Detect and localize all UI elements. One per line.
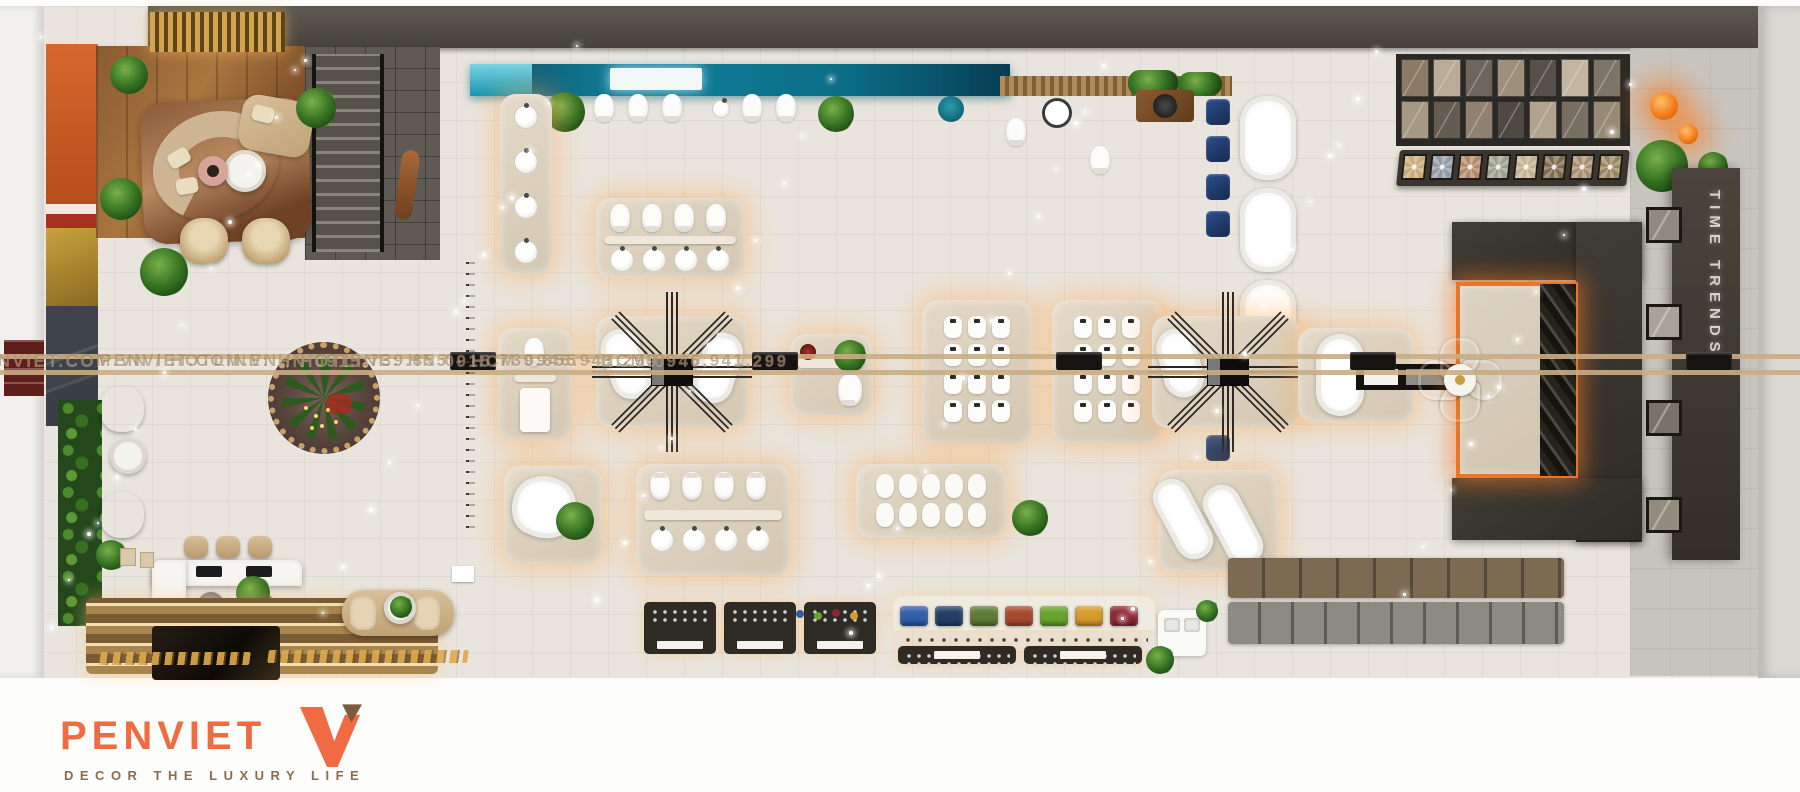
faucet-display-table (804, 602, 876, 654)
gold-wall-panel (46, 228, 98, 306)
toilet-fixture (650, 472, 670, 500)
freestanding-bathtub (1240, 96, 1296, 180)
rattan-chair (100, 492, 144, 538)
seat-sq-fixture (944, 400, 962, 422)
teal-lightbox-strip (470, 64, 532, 96)
pattern-tile (1457, 154, 1484, 180)
orange-pendant-lamp (1650, 92, 1678, 120)
consultation-table (1444, 364, 1476, 396)
navy-unit-fixture (1206, 99, 1230, 125)
marble-tile (1433, 59, 1461, 97)
potted-plant (1146, 646, 1174, 674)
basin-round-fixture (650, 528, 674, 552)
red-wall-stripe (46, 214, 98, 228)
pedestal-basin (1042, 98, 1072, 128)
potted-plant (1196, 600, 1218, 622)
wood-basin-table (1136, 90, 1194, 122)
pattern-tile (1597, 154, 1624, 180)
penviet-logo-text: PENVIET (60, 714, 266, 759)
white-wall-stripe (46, 204, 98, 214)
seat-sq-fixture (1074, 400, 1092, 422)
seat-sq-fixture (968, 372, 986, 394)
toilet-display (838, 374, 862, 406)
pattern-tile (1569, 154, 1596, 180)
toilet-grid (876, 474, 986, 527)
freestanding-bathtub (1240, 188, 1296, 272)
toilet-fixture (682, 472, 702, 500)
color-basin (1040, 606, 1068, 626)
string-lights (304, 406, 308, 410)
marble-tile (1497, 101, 1525, 139)
seat-sq-fixture (992, 316, 1010, 338)
potted-plant (296, 88, 336, 128)
toilet-fixture (610, 204, 630, 232)
toilet-fixture (642, 204, 662, 232)
seat-sq-fixture (1098, 316, 1116, 338)
floor-sign-card (452, 566, 474, 582)
navy-unit-fixture (1206, 211, 1230, 237)
color-basin (1110, 606, 1138, 626)
rail-slider-block (1350, 352, 1396, 370)
gold-3d-signage (99, 652, 251, 665)
reception-stool (248, 536, 272, 558)
toilet-display (1090, 146, 1110, 174)
toilet-fixture (776, 94, 796, 122)
potted-plant (390, 596, 412, 618)
oval-sq-fixture (876, 474, 894, 498)
color-basin (1005, 606, 1033, 626)
reception-stool (216, 536, 240, 558)
seat-sq-fixture (944, 372, 962, 394)
marble-tile (1433, 101, 1461, 139)
red-accent (326, 394, 352, 414)
teal-feature-wall (470, 64, 1010, 96)
lounge-armchair (242, 218, 290, 264)
faucet-row (902, 636, 1148, 646)
measure-ruler (466, 256, 475, 528)
marble-tile (1465, 101, 1493, 139)
orange-pendant-lamp (1678, 124, 1698, 144)
marble-tile (1529, 59, 1557, 97)
pattern-tile (1485, 154, 1512, 180)
toilet-fixture (594, 94, 614, 122)
potted-plant (1012, 500, 1048, 536)
tile-cabinet-bottom (1452, 478, 1642, 540)
toilet-basin-island (596, 198, 744, 278)
toilet-fixture (662, 94, 682, 122)
trend-tile (1646, 207, 1682, 243)
tile-slide-rack (1540, 284, 1576, 476)
colored-stools (796, 610, 804, 618)
brand-lightbox-sign (610, 68, 702, 90)
oval-sq-fixture (922, 474, 940, 498)
display-shelf (644, 510, 782, 520)
toilet-row (650, 472, 766, 500)
seat-sq-fixture (992, 400, 1010, 422)
marble-tile (1401, 101, 1429, 139)
reception-stool (184, 536, 208, 558)
desk-monitor (196, 566, 222, 577)
basin-round-fixture (514, 150, 538, 174)
navy-fixture-column (1206, 98, 1230, 238)
seat-sq-fixture (968, 400, 986, 422)
display-shelf (514, 374, 556, 382)
daybed-cushion (414, 596, 440, 630)
display-shelf (604, 236, 736, 244)
seat-sq-fixture (1122, 316, 1140, 338)
oval-sq-fixture (968, 503, 986, 527)
seat-sq-fixture (1122, 372, 1140, 394)
staircase (312, 54, 384, 252)
wall-hung-toilet-row (594, 94, 682, 122)
basin-round-fixture (746, 528, 770, 552)
rattan-table (110, 438, 146, 474)
basin-round-fixture (514, 195, 538, 219)
basin-round-fixture (514, 240, 538, 264)
trend-tile (1646, 497, 1682, 533)
seat-sq-fixture (944, 316, 962, 338)
trend-tile (1646, 304, 1682, 340)
seat-sq-fixture (1122, 400, 1140, 422)
pattern-tile-rack (1396, 150, 1630, 186)
marble-tile (1529, 101, 1557, 139)
wall-basin (712, 100, 730, 118)
basin-round-fixture (714, 528, 738, 552)
potted-plant (818, 96, 854, 132)
orange-feature-wall (46, 44, 98, 204)
potted-plant (556, 502, 594, 540)
lounge-armchair (180, 218, 228, 264)
basin-round-fixture (610, 248, 634, 272)
vanity-cabinet (520, 388, 550, 432)
toilet-fixture (742, 94, 762, 122)
pattern-tile (1401, 154, 1428, 180)
toilet-fixture (628, 94, 648, 122)
oval-sq-fixture (968, 474, 986, 498)
watermark-text: PENVIET.COM.VN / HOTLINE: HN 0915.739.85… (100, 351, 789, 371)
floor-tile-display (1228, 558, 1564, 598)
rattan-chair (100, 386, 144, 432)
side-table (198, 156, 228, 186)
pattern-tile (1513, 154, 1540, 180)
navy-unit-fixture (1206, 174, 1230, 200)
shopping-bag (140, 552, 154, 568)
color-basin (900, 606, 928, 626)
toilet-basin-island (636, 464, 790, 576)
marble-tile (1593, 101, 1621, 139)
toilet-display (1006, 118, 1026, 146)
potted-plant (100, 178, 142, 220)
basin-round-fixture (514, 105, 538, 129)
right-wall (1758, 6, 1800, 678)
oval-sq-fixture (899, 474, 917, 498)
basin-round-fixture (642, 248, 666, 272)
color-basin (935, 606, 963, 626)
basin-display-bench (1024, 646, 1142, 664)
marble-tile (1593, 59, 1621, 97)
seat-sq-fixture (968, 316, 986, 338)
top-wall-band (148, 6, 1800, 48)
colored-basin-row (900, 606, 1138, 626)
penviet-logo-icon (296, 702, 362, 770)
faucet-display-table (644, 602, 716, 654)
rail-slider-block (1686, 352, 1732, 370)
marble-tile (1561, 101, 1589, 139)
floor-tile-display (1228, 602, 1564, 644)
toilet-grid-island (856, 464, 1006, 538)
rail-slider-block (1056, 352, 1102, 370)
toilet-fixture (746, 472, 766, 500)
oval-sq-fixture (922, 503, 940, 527)
basin-round-fixture (706, 248, 730, 272)
coffee-table (224, 150, 266, 192)
marble-tile (1561, 59, 1589, 97)
seat-sq-fixture (1074, 372, 1092, 394)
seat-sq-fixture (992, 372, 1010, 394)
oval-sq-fixture (945, 503, 963, 527)
toilet-grid (944, 316, 1010, 422)
toilet-cabinet-island (498, 328, 572, 440)
marble-tile (1401, 59, 1429, 97)
penviet-tagline: DECOR THE LUXURY LIFE (64, 768, 365, 783)
seat-sq-fixture (1098, 372, 1116, 394)
angled-tub-island (1158, 470, 1278, 572)
basin-round-fixture (674, 248, 698, 272)
shopping-bag (120, 548, 136, 566)
gold-3d-signage (267, 650, 469, 663)
navy-unit-fixture (1206, 136, 1230, 162)
basin-display-counter (500, 94, 552, 274)
pattern-tile (1429, 154, 1456, 180)
green-plant-wall (58, 400, 102, 626)
basin-row (650, 528, 770, 552)
seat-sq-fixture (1074, 316, 1092, 338)
teal-vessel-basin (938, 96, 964, 122)
toilet-fixture (706, 204, 726, 232)
basin-display-bench (898, 646, 1016, 664)
toilet-fixture (714, 472, 734, 500)
trend-tile (1646, 400, 1682, 436)
freeform-tub-island (504, 466, 602, 564)
gold-slat-ceiling-feature (150, 12, 285, 52)
pattern-tile (1541, 154, 1568, 180)
oval-sq-fixture (945, 474, 963, 498)
basin-row (610, 248, 730, 272)
oval-sq-fixture (876, 503, 894, 527)
consultation-chair-cluster (1418, 338, 1502, 422)
seat-sq-fixture (1098, 400, 1116, 422)
basin-round-fixture (682, 528, 706, 552)
toilet-fixture (674, 204, 694, 232)
color-basin (1075, 606, 1103, 626)
wall-hung-toilet-row (742, 94, 796, 122)
marble-tile (1465, 59, 1493, 97)
potted-plant (110, 56, 148, 94)
faucet-display-table (724, 602, 796, 654)
accessory-island (790, 334, 872, 416)
color-basin (970, 606, 998, 626)
potted-plant (140, 248, 188, 296)
toilet-row (610, 204, 726, 232)
oval-sq-fixture (899, 503, 917, 527)
marble-tile-display-wall (1396, 54, 1630, 146)
marble-tile (1497, 59, 1525, 97)
showroom-render-canvas: TIME TRENDS PENVIET.COM.VN / HOTLINE: H (0, 0, 1800, 792)
daybed-cushion (350, 596, 376, 630)
